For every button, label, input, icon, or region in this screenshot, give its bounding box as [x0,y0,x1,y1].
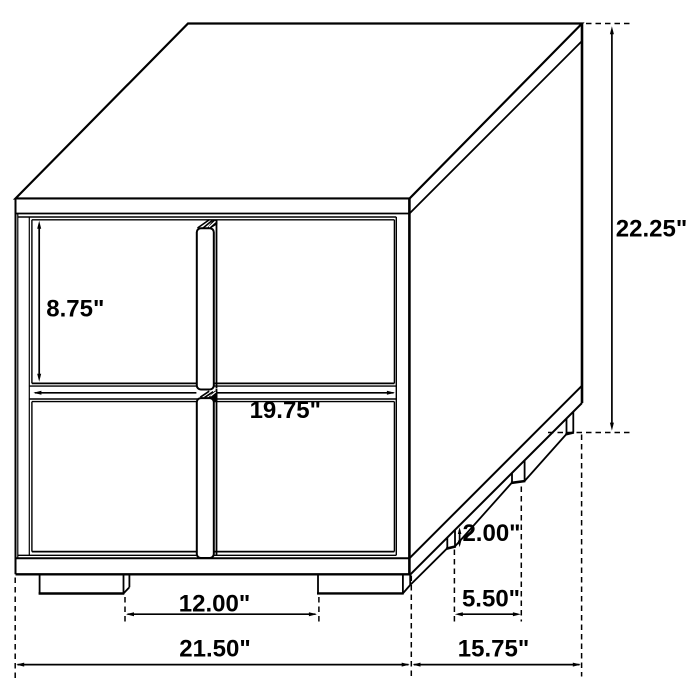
svg-text:19.75": 19.75" [250,397,321,424]
svg-text:5.50": 5.50" [462,585,520,612]
svg-text:8.75": 8.75" [46,296,104,323]
svg-text:12.00": 12.00" [179,590,250,617]
svg-text:21.50": 21.50" [179,635,250,662]
svg-text:15.75": 15.75" [458,635,529,662]
svg-text:2.00": 2.00" [462,520,520,547]
svg-text:22.25": 22.25" [616,216,687,243]
